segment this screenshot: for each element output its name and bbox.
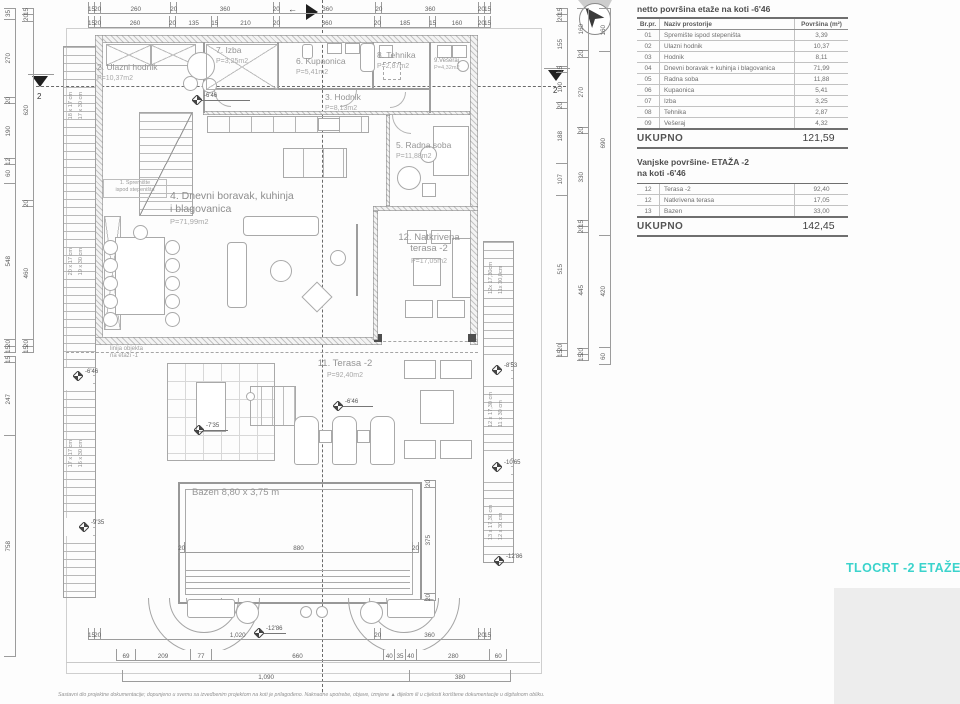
pool-label: Bazen 8,80 x 3,75 m [192,487,279,498]
room-label-tehnika: 8. Tehnika P=2,87m2 [377,50,416,72]
dim-col-right-mid: 160202702033015204452015 [577,8,589,361]
sofa [227,242,247,308]
total-label: UKUPNO [637,221,789,232]
elevation-marker: -6'46 [73,371,83,381]
patio-chair [404,440,436,459]
patio-table [420,390,454,424]
room-label-natkrivena: 12. Natkrivena terasa -2 P=17,05m2 [386,232,472,266]
room-label-izba: 7. Izba P=3,25m2 [216,45,248,67]
wall-covered-terrace-left [373,211,378,340]
terrace-pillar [468,334,476,342]
stair-note-text: 11x 30,0cm [497,262,505,294]
room-label: 2. Ulazni hodnik [97,62,157,72]
stair-note-text: 12x 17,30cm [487,262,495,294]
room-label-dnevni: 4. Dnevni boravak, kuhinja i blagovanica… [170,190,294,228]
elevation-marker: -8'53 [492,365,502,375]
room-name-cell: Terasa -2 [660,184,795,194]
stair-note-text: 17 x 17 cm [67,440,75,467]
side-table [330,250,346,266]
dim-value: 1,020 [101,628,375,639]
header-povrsina: Površina (m²) [795,19,848,29]
dim-value: 160 [577,9,588,51]
wall-bottom [95,337,382,345]
room-area-cell: 71,99 [795,63,848,73]
room-area-cell: 3,25 [795,96,848,106]
dim-value: 35 [395,649,405,660]
dim-value: 107 [556,164,567,196]
elevation-marker: -7'35 [194,425,204,435]
room-label-kupaonica: 6. Kupaonica P=5,41m2 [296,56,346,78]
room-label: 1. Spremište [120,180,150,186]
dim-col-left-lower: 15247758 [4,356,16,657]
dim-value: 15 [485,628,491,639]
room-label-radna: 5. Radna soba P=11,88m2 [396,140,451,162]
room-area-cell: 2,87 [795,107,848,117]
room-name-cell: Kupaonica [660,85,795,95]
dining-chair [165,294,180,309]
room-number-cell: 07 [637,96,660,106]
dim-value: 548 [4,184,15,341]
elevation-value: -12'86 [506,554,523,560]
room-number-cell: 13 [637,206,660,216]
dim-value: 247 [4,363,15,436]
dim-value: 15 [22,347,33,353]
room-label: 8. Tehnika [377,50,416,60]
stair-note-text: 11 x 30 cm [497,392,505,427]
lounger-side-table [357,430,370,443]
vanjske-area-table: 12 Terasa -2 92,40 12 Natkrivena terasa … [637,183,848,237]
room-name-cell: Tehnika [660,107,795,117]
wall-right [470,35,478,345]
stair-note-left-mid: 20 x 17 cm 19 x 30 cm [67,248,86,275]
dim-value: 15 [485,16,491,27]
dim-value: 20 [424,594,435,601]
netto-area-table: Br.pr. Naziv prostorije Površina (m²) 01… [637,17,848,149]
lounge-chair [397,166,421,190]
dim-value: 420 [599,236,610,348]
wall-study-bottom [373,206,478,211]
room-label: ispod stepeništa [116,187,155,193]
dim-value: 60 [4,165,15,183]
room-area: P=5,41m2 [296,69,328,76]
total-label: UKUPNO [637,133,789,144]
dim-value: 20 [424,481,435,488]
room-name-cell: Dnevni boravak + kuhinja i blagovanica [660,63,795,73]
room-name-cell: Izba [660,96,795,106]
table-row: 07 Izba 3,25 [637,96,848,107]
room-name-cell: Spremište ispod stepeništa [660,30,795,40]
room-label: Bazen 8,80 x 3,75 m [192,487,279,498]
room-label: 6. Kupaonica [296,56,346,66]
room-label-hodnik: 3. Hodnik P=8,13m2 [325,92,361,114]
room-number-cell: 04 [637,63,660,73]
room-label-ulazni: 2. Ulazni hodnik P=10,37m2 [97,62,157,84]
dim-pool-height: 2037520 [424,480,436,601]
dining-table [115,237,165,315]
table-title-line: Vanjske površine- ETAŽA -2 [637,157,749,167]
header-naziv: Naziv prostorije [660,19,795,29]
stair-note-text: 16 x 30 cm [77,440,85,467]
dim-value: 515 [556,196,567,344]
room-area-cell: 17,05 [795,195,848,205]
garden-sofa [387,599,435,618]
room-label: i blagovanica [170,203,231,215]
garden-chair [360,601,383,624]
table-header: Br.pr. Naziv prostorije Površina (m²) [637,17,848,30]
total-value: 121,59 [789,132,848,144]
elevation-value: -9'35 [91,520,104,526]
table-row: 12 Natkrivena terasa 17,05 [637,195,848,206]
dining-chair [103,312,118,327]
elevation-value: -10'65 [504,460,521,466]
dim-value: 135 [176,16,212,27]
stair-note-text: 17 x 30 cm [77,92,85,119]
room-area: P=17,05m2 [411,258,447,265]
room-area: P=8,13m2 [325,105,357,112]
dim-value: 20 [22,201,33,208]
dim-value: 160 [599,9,610,52]
annotation-text: na etaži -1 [110,353,138,359]
table-row: 03 Hodnik 8,11 [637,52,848,63]
dining-chair [165,312,180,327]
netto-table-title: netto površina etaže na koti -6'46 [637,4,770,15]
room-area: P=11,88m2 [396,153,431,160]
total-value: 142,45 [789,220,848,232]
dryer [452,45,467,58]
vanjske-table-title: Vanjske površine- ETAŽA -2 na koti -6'46 [637,157,749,178]
washer [437,45,452,58]
table-total-row: UKUPNO 121,59 [637,130,848,149]
room-name-cell: Radna soba [660,74,795,84]
dim-value: 160 [436,16,479,27]
terrace-bench [437,300,465,318]
room-number-cell: 05 [637,74,660,84]
footer-disclaimer: Sastavni dio projektne dokumentacije; do… [58,692,602,698]
stair-note-right-top: 12x 17,30cm 11x 30,0cm [487,262,506,294]
dim-row-bottom-3: 1,090380 [122,670,511,682]
dim-value: 880 [185,542,413,552]
dining-chair [103,240,118,255]
elevation-value: -8'53 [504,363,517,369]
drawing-title: TLOCRT -2 ETAŽE [846,561,960,575]
dim-value: 360 [280,2,376,13]
stair-note-text: 20 x 17 cm [67,248,75,275]
covered-terrace-edge [378,341,478,342]
dim-value: 20 [4,98,15,105]
section-marker-left [32,76,48,87]
dim-value: 360 [381,628,478,639]
dim-value: 360 [177,2,273,13]
plant [183,76,198,91]
room-label: 11. Terasa -2 [318,358,373,369]
dim-value: 360 [280,16,375,27]
bathtub [360,43,375,72]
section-line [36,86,566,87]
storage-label-box: 1. Spremište ispod stepeništa [103,179,167,198]
stair-note-right-mid: 12 x 17,30 cm 11 x 30 cm [487,392,506,427]
room-name-cell: Hodnik [660,52,795,62]
room-number-cell: 08 [637,107,660,117]
table-body: 12 Terasa -2 92,40 12 Natkrivena terasa … [637,183,848,218]
stair-note-left-low: 17 x 17 cm 16 x 30 cm [67,440,86,467]
kitchen-counter [207,116,369,133]
stair-note-left-top: 18 x 17 cm 17 x 30 cm [67,92,86,119]
dim-value: 188 [556,109,567,164]
floor-plan-sheet: 18 x 17 cm 17 x 30 cm 20 x 17 cm 19 x 30… [0,0,960,704]
room-label: 3. Hodnik [325,92,361,102]
dim-value: 260 [101,16,170,27]
dim-value: 270 [577,58,588,129]
dining-chair [103,294,118,309]
dining-chair [165,276,180,291]
table-row: 09 Vešeraj 4,32 [637,118,848,128]
dim-value: 190 [4,104,15,159]
annotation-text: linija objekta [110,346,143,352]
sink [345,43,360,54]
room-name-cell: Natkrivena terasa [660,195,795,205]
dim-value: 100 [556,73,567,103]
room-label: 12. Natkrivena [398,232,459,243]
dim-value: 20 [413,542,419,552]
stair-note-text: 19 x 30 cm [77,248,85,275]
dim-col-left-outer: 352702019012605482015 [4,8,16,353]
dim-value: 185 [381,16,430,27]
room-name-cell: Bazen [660,206,795,216]
garden-pot [316,606,328,618]
stair-note-text: 12 x 30 cm [497,505,505,540]
wall-top [95,35,478,43]
elevation-value: -6'46 [204,93,217,99]
room-area: P=10,37m2 [97,75,133,82]
table-row: 05 Radna soba 11,88 [637,74,848,85]
dim-value: 15 [4,347,15,353]
dining-chair [165,258,180,273]
tv-wall [356,224,358,296]
room-number-cell: 06 [637,85,660,95]
dim-value: 35 [4,9,15,20]
table-row: 04 Dnevni boravak + kuhinja i blagovanic… [637,63,848,74]
wall-study-left [386,115,390,206]
dim-value: 690 [599,52,610,236]
room-label: 5. Radna soba [396,140,451,150]
patio-chair [440,440,472,459]
dim-value: 1,090 [123,670,410,681]
room-area: P=3,25m2 [216,58,248,65]
stair-note-text: 18 x 17 cm [67,92,75,119]
dim-col-right-outer: 16069042060 [599,8,611,365]
site-boundary-inner-line [66,662,540,663]
dim-value: 15 [577,355,588,361]
stair-left [63,46,96,598]
dim-value: 210 [218,16,274,27]
scan-shade [834,588,960,704]
table-row: 08 Tehnika 2,87 [637,107,848,118]
sun-lounger [370,416,395,465]
table-row: 06 Kupaonica 5,41 [637,85,848,96]
room-number-cell: 02 [637,41,660,51]
dim-value: 20 [556,103,567,110]
dim-value: 260 [101,2,171,13]
dim-col-right-inner: 152015515100201881075152015 [556,8,568,357]
elevation-marker: -9'35 [79,522,89,532]
dim-value: 77 [191,649,212,660]
dim-value: 270 [4,20,15,98]
dining-chair [165,240,180,255]
wall-tech-right [429,42,431,113]
room-label: 9.Vešeraj [434,58,459,64]
room-number-cell: 03 [637,52,660,62]
elevation-marker: -6'46 [333,401,343,411]
elevation-value: -6'46 [85,369,98,375]
room-label: 7. Izba [216,45,242,55]
dining-chair [133,225,148,240]
pool-steps [186,570,410,590]
dim-pool-width: 2088020 [178,542,419,553]
room-label-terasa: 11. Terasa -2 P=92,40m2 [290,358,400,381]
room-area-cell: 4,32 [795,118,848,128]
elevation-value: -6'46 [345,399,358,405]
dim-value: 375 [424,488,435,595]
table-title-line: na koti -6'46 [637,168,686,178]
sink [327,43,342,54]
room-number-cell: 09 [637,118,660,128]
dim-value: 15 [556,351,567,357]
table-row: 13 Bazen 33,00 [637,206,848,216]
dim-value: 40 [406,649,417,660]
dim-value: 20 [556,15,567,22]
dim-row-bottom-2: 692097766040354028060 [116,649,507,661]
lounger-side-table [319,430,332,443]
patio-chair [440,360,472,379]
patio-chair [404,360,436,379]
dim-value: 69 [117,649,136,660]
room-name-cell: Vešeraj [660,118,795,128]
stair-note-text: 12 x 17,30 cm [487,392,495,427]
dim-value: 330 [577,134,588,220]
elevation-value: -7'35 [206,423,219,429]
dim-value: 758 [4,436,15,657]
dining-chair [103,276,118,291]
room-area-cell: 8,11 [795,52,848,62]
dim-row-top-1: 15202602036020360203602015 [88,2,491,14]
dining-chair [103,258,118,273]
dim-value: 280 [417,649,491,660]
room-area: P=4,32m2 [434,65,460,71]
room-area-cell: 33,00 [795,206,848,216]
garden-steps [250,386,296,426]
dim-value: 620 [22,22,33,201]
dim-value: 15 [485,2,491,13]
dim-value: 60 [599,348,610,365]
room-label: terasa -2 [410,243,448,254]
garden-sofa [187,599,235,618]
table-row: 01 Spremište ispod stepeništa 3,39 [637,30,848,41]
room-area-cell: 92,40 [795,184,848,194]
stair-note-right-low: 13 x 17,30 cm 12 x 30 cm [487,505,506,540]
dim-value: 40 [384,649,395,660]
dim-value: 60 [490,649,507,660]
step-handle [246,392,255,401]
room-label-veseraj: 9.Vešeraj P=4,32m2 [434,58,460,72]
elevation-marker: -10'65 [492,462,502,472]
dim-value: 155 [556,22,567,67]
terrace-bench [405,300,433,318]
cooktop [318,118,340,131]
dim-value: 445 [577,233,588,349]
coffee-table [270,260,292,282]
sun-lounger [332,416,357,465]
header-br: Br.pr. [637,19,660,29]
room-label: 4. Dnevni boravak, kuhinja [170,190,294,202]
room-name-cell: Ulazni hodnik [660,41,795,51]
dim-row-bottom-1: 15201,020203602015 [88,628,491,640]
room-number-cell: 12 [637,184,660,194]
elevation-marker: -6'46 [192,95,202,105]
room-area: P=2,87m2 [377,63,409,70]
garden-pot [300,606,312,618]
dim-value: 460 [22,207,33,340]
dim-col-left-inner: 1520620204602015 [22,8,34,353]
room-area: P=71,99m2 [170,217,209,226]
stair-note-text: 13 x 17,30 cm [487,505,495,540]
table-row: 02 Ulazni hodnik 10,37 [637,41,848,52]
room-area: P=92,40m2 [327,372,363,379]
room-area-cell: 3,39 [795,30,848,40]
elevation-marker: -12'86 [494,556,504,566]
dim-value: 20 [22,15,33,22]
room-area-cell: 11,88 [795,74,848,84]
kitchen-island [283,148,347,178]
ottoman [422,183,436,197]
dim-value: 660 [212,649,384,660]
table-total-row: UKUPNO 142,45 [637,218,848,237]
table-body: 01 Spremište ispod stepeništa 3,39 02 Ul… [637,30,848,130]
dim-value: 380 [410,670,511,681]
table-row: 12 Terasa -2 92,40 [637,184,848,195]
room-area-cell: 10,37 [795,41,848,51]
garden-chair [236,601,259,624]
dim-value: 209 [136,649,191,660]
dim-value: 360 [382,2,478,13]
object-line-note: linija objekta na etaži -1 [110,346,143,360]
dim-row-top-2: 152026020135152102036020185151602015 [88,16,491,28]
room-area-cell: 5,41 [795,85,848,95]
room-number-cell: 12 [637,195,660,205]
section-label-left: 2 [37,92,41,101]
sun-lounger [294,416,319,465]
room-number-cell: 01 [637,30,660,40]
